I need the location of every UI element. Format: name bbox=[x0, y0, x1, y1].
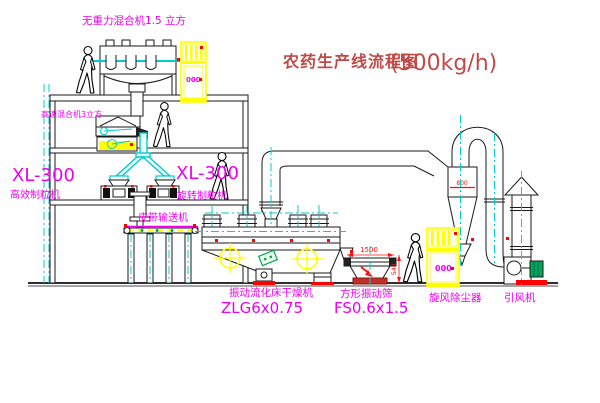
label-dryer-name: 振动流化床干燥机 bbox=[229, 286, 313, 299]
cyclone-dim: 800 bbox=[456, 180, 468, 187]
label-high-speed-mixer: 高速混合机3立方 bbox=[41, 109, 102, 119]
belt-conveyor bbox=[124, 224, 198, 234]
process-flow-diagram: 000 bbox=[0, 0, 600, 403]
person-figure-2 bbox=[153, 102, 171, 146]
dryer-stand bbox=[311, 273, 334, 285]
cabinet-display-2: 000 bbox=[435, 264, 452, 273]
label-top-mixer: 无重力混合机1.5 立方 bbox=[82, 14, 186, 27]
cad-drawing: 000 bbox=[0, 0, 600, 403]
down-chute bbox=[131, 92, 143, 116]
label-cyclone: 旋风除尘器 bbox=[429, 291, 482, 304]
title-capacity: (500kg/h) bbox=[390, 51, 497, 76]
zero-gravity-mixer bbox=[88, 40, 188, 116]
label-fan: 引风机 bbox=[504, 291, 536, 304]
person-figure-1 bbox=[77, 47, 96, 94]
granulator-left bbox=[101, 180, 137, 200]
control-cabinet-2: 000 bbox=[427, 228, 459, 287]
dim-1500: 1500 bbox=[347, 246, 394, 257]
control-cabinet-1: 000 bbox=[181, 42, 206, 102]
label-xl300-mid: XL-300 bbox=[176, 163, 239, 184]
drawing-title: 农药生产线流程图 (500kg/h) bbox=[282, 51, 497, 76]
label-dryer-model: ZLG6x0.75 bbox=[221, 299, 303, 317]
sieve-width-dim: 1500 bbox=[360, 246, 378, 254]
person-figure-4 bbox=[404, 234, 423, 282]
induced-draft-fan bbox=[504, 257, 547, 285]
dryer-exhaust-duct bbox=[259, 147, 448, 230]
label-granulator-mid: 旋转制粒机 bbox=[177, 189, 227, 202]
cabinet-display-1: 000 bbox=[186, 76, 201, 84]
vibrating-sieve: 1500 541 bbox=[340, 246, 401, 285]
label-belt-conveyor: 皮带输送机 bbox=[138, 211, 188, 224]
conveyor-supports bbox=[128, 234, 191, 283]
label-xl300-left: XL-300 bbox=[12, 165, 75, 186]
ground-line bbox=[28, 283, 558, 286]
granulator-right bbox=[147, 180, 179, 200]
label-granulator-left: 高效制粒机 bbox=[10, 188, 60, 201]
label-sieve-model: FS0.6x1.5 bbox=[334, 299, 408, 317]
vibration-motor bbox=[253, 269, 275, 285]
sieve-height-dim: 541 bbox=[390, 263, 398, 275]
